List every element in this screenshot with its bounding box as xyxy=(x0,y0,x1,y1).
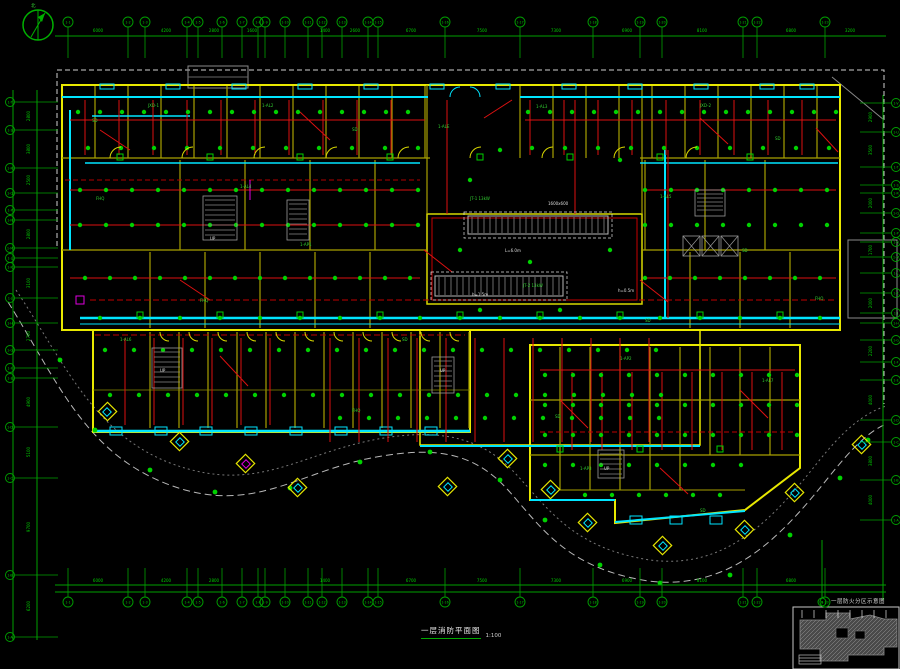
axis-top-bubble-label: 1-12 xyxy=(318,20,325,24)
device-dots xyxy=(662,146,666,150)
device-dots xyxy=(252,110,256,114)
device-dots xyxy=(599,416,603,420)
axis-top-bubble-label: 1-3 xyxy=(142,20,147,24)
device-dots xyxy=(103,348,107,352)
axis-right-bubble-label: 1-K xyxy=(893,291,899,295)
axis-top-bubble-label: 1-13 xyxy=(338,20,345,24)
device-dots xyxy=(728,146,732,150)
axis-top-bubble-label: 1-14 xyxy=(364,20,371,24)
device-dots xyxy=(767,433,771,437)
device-dots xyxy=(838,476,843,481)
axis-bottom-dim: 8100 xyxy=(697,578,708,583)
device-dots xyxy=(338,223,342,227)
device-dots xyxy=(86,146,90,150)
device-dots xyxy=(683,373,687,377)
device-dots xyxy=(498,148,502,152)
device-dots xyxy=(711,433,715,437)
keyplan xyxy=(855,631,865,639)
device-dots xyxy=(610,493,614,497)
annotation-labels: 1-AL4 xyxy=(240,184,252,189)
device-dots xyxy=(480,348,484,352)
axis-bottom-dim: 4200 xyxy=(161,578,172,583)
drawing-scale: 1:100 xyxy=(486,633,502,639)
device-dots xyxy=(691,493,695,497)
axis-bottom-dim: 6000 xyxy=(93,578,104,583)
axis-top-dim: 1600 xyxy=(247,28,258,33)
axis-top-dim: 6000 xyxy=(93,28,104,33)
axis-bottom-bubble-label: 1-23 xyxy=(821,600,828,604)
axis-right-dim: 2900 xyxy=(868,111,873,122)
device-dots xyxy=(428,450,433,455)
device-dots xyxy=(668,276,672,280)
device-dots xyxy=(390,188,394,192)
axis-left-dim: 3100 xyxy=(26,277,31,288)
device-dots xyxy=(655,403,659,407)
axis-bottom-bubble-label: 1-17 xyxy=(516,600,523,604)
axis-bottom-bubble-label: 1-14 xyxy=(364,600,371,604)
device-dots xyxy=(718,493,722,497)
axis-left-bubble-label: 1-L xyxy=(8,256,13,260)
device-dots xyxy=(408,276,412,280)
annotation-labels: SD xyxy=(700,508,706,513)
device-dots xyxy=(108,393,112,397)
axis-bottom-dim: 1400 xyxy=(320,578,331,583)
axis-left-bubble-label: 1-E xyxy=(7,376,12,380)
axis-right-bubble-label: 1-N xyxy=(893,240,899,244)
axis-left-dim: 2700 xyxy=(26,330,31,341)
device-dots xyxy=(427,393,431,397)
device-dots xyxy=(627,463,631,467)
device-dots xyxy=(108,276,112,280)
device-dots xyxy=(643,223,647,227)
annotation-labels: h=0.5m xyxy=(618,288,634,293)
device-dots xyxy=(104,188,108,192)
device-dots xyxy=(773,188,777,192)
device-dots xyxy=(578,316,582,320)
device-dots xyxy=(251,146,255,150)
annotation-labels: h=1.5m xyxy=(472,292,488,297)
device-dots xyxy=(208,188,212,192)
device-dots xyxy=(284,146,288,150)
device-dots xyxy=(599,463,603,467)
device-dots xyxy=(296,110,300,114)
device-dots xyxy=(183,276,187,280)
device-dots xyxy=(308,276,312,280)
device-dots xyxy=(418,316,422,320)
axis-top-dim: 8100 xyxy=(697,28,708,33)
device-dots xyxy=(340,393,344,397)
device-dots xyxy=(583,493,587,497)
drawing-title-block: 一层消防平面图 1:100 xyxy=(421,625,501,639)
device-dots xyxy=(658,110,662,114)
device-dots xyxy=(695,146,699,150)
axis-right-bubble-label: 1-V xyxy=(893,101,899,105)
device-dots xyxy=(396,416,400,420)
device-dots xyxy=(795,433,799,437)
device-dots xyxy=(793,276,797,280)
device-dots xyxy=(230,110,234,114)
axis-left-dim: 2800 xyxy=(26,228,31,239)
device-dots xyxy=(224,393,228,397)
device-dots xyxy=(655,463,659,467)
device-dots xyxy=(219,348,223,352)
axis-left-dim: 2800 xyxy=(26,110,31,121)
device-dots xyxy=(627,373,631,377)
annotation-labels: SD xyxy=(775,136,781,141)
device-dots xyxy=(543,373,547,377)
axis-right-dim: 2000 xyxy=(868,197,873,208)
axis-bottom-dim: 7300 xyxy=(551,578,562,583)
device-dots xyxy=(76,110,80,114)
annotation-labels: L=6.0m xyxy=(505,248,521,253)
axis-right-bubble-label: 1-F xyxy=(893,360,898,364)
device-dots xyxy=(152,146,156,150)
device-dots xyxy=(416,146,420,150)
axis-right-bubble-label: 1-D xyxy=(893,418,899,422)
device-dots xyxy=(318,110,322,114)
axis-right-dim: 3500 xyxy=(868,144,873,155)
device-dots xyxy=(158,276,162,280)
axis-bottom-bubble-label: 1-2 xyxy=(125,600,130,604)
device-dots xyxy=(718,276,722,280)
device-dots xyxy=(543,393,547,397)
device-dots xyxy=(596,146,600,150)
annotation-labels: 1-ALE xyxy=(438,124,450,129)
annotation-labels: 1-AP1 xyxy=(300,242,312,247)
annotation-labels: FHQ xyxy=(815,296,823,301)
device-dots xyxy=(333,276,337,280)
annotation-labels: UP xyxy=(440,368,446,373)
annotation-labels: FHQ xyxy=(200,298,208,303)
device-dots xyxy=(739,373,743,377)
device-dots xyxy=(456,393,460,397)
axis-left-dim: 9700 xyxy=(26,521,31,532)
axis-left-dim: 2500 xyxy=(26,174,31,185)
device-dots xyxy=(393,348,397,352)
device-dots xyxy=(258,316,262,320)
axis-right-bubble-label: 1-S xyxy=(893,183,898,187)
annotation-labels: 1-AP3 xyxy=(580,466,592,471)
device-dots xyxy=(156,223,160,227)
device-dots xyxy=(818,276,822,280)
axis-right-bubble-label: 1-T xyxy=(894,165,899,169)
axis-top-dim: 6900 xyxy=(622,28,633,33)
device-dots xyxy=(541,416,545,420)
device-dots xyxy=(258,276,262,280)
device-dots xyxy=(795,403,799,407)
device-dots xyxy=(208,276,212,280)
annotation-labels: 1-AL5 xyxy=(660,194,672,199)
device-dots xyxy=(627,433,631,437)
device-dots xyxy=(383,146,387,150)
keyplan-title: 一层防火分区示意图 xyxy=(831,597,885,605)
device-dots xyxy=(260,223,264,227)
device-dots xyxy=(133,276,137,280)
axis-right-bubble-label: 1-J xyxy=(894,311,898,315)
device-dots xyxy=(398,393,402,397)
device-dots xyxy=(643,188,647,192)
device-dots xyxy=(498,316,502,320)
device-dots xyxy=(148,468,153,473)
device-dots xyxy=(161,348,165,352)
axis-top-dim: 6700 xyxy=(406,28,417,33)
device-dots xyxy=(628,416,632,420)
axis-bottom-dim: 6900 xyxy=(622,578,633,583)
axis-top-bubble-label: 1-21 xyxy=(739,20,746,24)
axis-right-bubble-label: 1-L xyxy=(894,271,899,275)
device-dots xyxy=(825,223,829,227)
axis-bottom-bubble-label: 1-16 xyxy=(441,600,448,604)
device-dots xyxy=(132,348,136,352)
axis-bottom-bubble-label: 1-10 xyxy=(281,600,288,604)
device-dots xyxy=(164,110,168,114)
keyplan xyxy=(836,628,848,638)
device-dots xyxy=(627,403,631,407)
device-dots xyxy=(799,188,803,192)
device-dots xyxy=(166,393,170,397)
device-dots xyxy=(599,403,603,407)
device-dots xyxy=(78,188,82,192)
device-dots xyxy=(390,223,394,227)
annotation-labels: UP xyxy=(604,466,610,471)
axis-right-bubble-label: 1-E xyxy=(893,378,898,382)
axis-right-dim: 4000 xyxy=(868,394,873,405)
device-dots xyxy=(338,188,342,192)
axis-top-bubble-label: 1-18 xyxy=(589,20,596,24)
axis-left-bubble-label: 1-J xyxy=(8,296,12,300)
device-dots xyxy=(538,348,542,352)
axis-bottom-bubble-label: 1-20 xyxy=(658,600,665,604)
north-label: 北 xyxy=(31,3,36,9)
device-dots xyxy=(526,110,530,114)
device-dots xyxy=(571,373,575,377)
device-dots xyxy=(738,316,742,320)
device-dots xyxy=(683,403,687,407)
device-dots xyxy=(512,416,516,420)
device-dots xyxy=(213,490,218,495)
axis-right-bubble-label: 1-H xyxy=(893,321,899,325)
axis-top-bubble-label: 1-6 xyxy=(219,20,224,24)
axis-bottom-bubble-label: 1-4 xyxy=(184,600,189,604)
annotation-labels: 1-AL7 xyxy=(762,378,774,383)
device-dots xyxy=(767,373,771,377)
axis-right-dim: 2200 xyxy=(868,345,873,356)
device-dots xyxy=(130,223,134,227)
device-dots xyxy=(614,110,618,114)
device-dots xyxy=(795,373,799,377)
device-dots xyxy=(498,478,503,483)
device-dots xyxy=(483,416,487,420)
device-dots xyxy=(338,416,342,420)
axis-top-bubble-label: 1-10 xyxy=(281,20,288,24)
device-dots xyxy=(629,146,633,150)
axis-right-bubble-label: 1-M xyxy=(893,255,899,259)
device-dots xyxy=(711,463,715,467)
annotation-labels: SD xyxy=(352,127,358,132)
device-dots xyxy=(794,146,798,150)
device-dots xyxy=(693,276,697,280)
device-dots xyxy=(563,146,567,150)
axis-top-bubble-label: 1-9 xyxy=(262,20,267,24)
device-dots xyxy=(683,463,687,467)
device-dots xyxy=(362,110,366,114)
axis-right-bubble-label: 1-U xyxy=(893,130,899,134)
axis-right-dim: 1700 xyxy=(868,244,873,255)
cad-viewport: 6JXD-11-AL2SD1-AL3JXD-2FHQ1-AP11-AL5SD1-… xyxy=(0,0,900,669)
axis-left-bubble-label: 1-A xyxy=(7,635,13,639)
device-dots xyxy=(596,348,600,352)
device-dots xyxy=(350,146,354,150)
axis-top-dim: 7500 xyxy=(477,28,488,33)
annotation-labels: JT-2 13kW xyxy=(522,283,543,288)
device-dots xyxy=(543,463,547,467)
axis-top-bubble-label: 1-15 xyxy=(374,20,381,24)
device-dots xyxy=(655,433,659,437)
device-dots xyxy=(767,403,771,407)
device-dots xyxy=(338,316,342,320)
device-dots xyxy=(458,248,462,252)
axis-bottom-bubble-label: 1-19 xyxy=(636,600,643,604)
annotation-labels: 1-AP2 xyxy=(620,356,632,361)
device-dots xyxy=(406,110,410,114)
device-dots xyxy=(190,348,194,352)
device-dots xyxy=(695,223,699,227)
axis-left-bubble-label: 1-C xyxy=(7,476,13,480)
annotation-labels: JT-1 13kW xyxy=(469,196,490,201)
device-dots xyxy=(178,316,182,320)
device-dots xyxy=(119,146,123,150)
device-dots xyxy=(799,223,803,227)
axis-left-bubble-label: 1-R xyxy=(7,166,13,170)
device-dots xyxy=(570,416,574,420)
device-dots xyxy=(654,348,658,352)
device-dots xyxy=(137,393,141,397)
axis-top-bubble-label: 1-5 xyxy=(195,20,200,24)
device-dots xyxy=(98,110,102,114)
device-dots xyxy=(478,308,482,312)
annotation-labels: 1-AL3 xyxy=(536,104,548,109)
device-dots xyxy=(454,416,458,420)
device-dots xyxy=(425,416,429,420)
device-dots xyxy=(253,393,257,397)
device-dots xyxy=(599,373,603,377)
axis-top-dim: 4200 xyxy=(161,28,172,33)
annotation-labels: SD xyxy=(402,337,408,342)
device-dots xyxy=(592,110,596,114)
axis-right-dim: 2000 xyxy=(868,297,873,308)
device-dots xyxy=(601,393,605,397)
axis-bottom-bubble-label: 1-12 xyxy=(318,600,325,604)
axis-top-bubble-label: 1-1 xyxy=(65,20,70,24)
axis-top-bubble-label: 1-20 xyxy=(658,20,665,24)
device-dots xyxy=(643,276,647,280)
device-dots xyxy=(739,403,743,407)
axis-bottom-bubble-label: 1-9 xyxy=(262,600,267,604)
axis-left-dim: 3800 xyxy=(26,143,31,154)
device-dots xyxy=(747,223,751,227)
axis-right-dim: 3800 xyxy=(868,455,873,466)
device-dots xyxy=(818,316,822,320)
device-dots xyxy=(182,188,186,192)
device-dots xyxy=(130,188,134,192)
device-dots xyxy=(669,188,673,192)
device-dots xyxy=(93,428,98,433)
device-dots xyxy=(657,416,661,420)
device-dots xyxy=(384,110,388,114)
device-dots xyxy=(311,393,315,397)
drawing-title: 一层消防平面图 xyxy=(421,625,481,639)
axis-top-bubble-label: 1-11 xyxy=(304,20,311,24)
device-dots xyxy=(655,373,659,377)
axis-bottom-bubble-label: 1-11 xyxy=(304,600,311,604)
device-dots xyxy=(186,110,190,114)
device-dots xyxy=(659,393,663,397)
device-dots xyxy=(747,188,751,192)
device-dots xyxy=(773,223,777,227)
device-dots xyxy=(739,433,743,437)
device-dots xyxy=(367,416,371,420)
device-dots xyxy=(571,403,575,407)
axis-bottom-bubble-label: 1-1 xyxy=(65,600,70,604)
device-dots xyxy=(768,276,772,280)
cad-canvas[interactable]: 6JXD-11-AL2SD1-AL3JXD-2FHQ1-AP11-AL5SD1-… xyxy=(0,0,900,669)
device-dots xyxy=(825,188,829,192)
device-dots xyxy=(680,110,684,114)
device-dots xyxy=(306,348,310,352)
device-dots xyxy=(558,308,562,312)
device-dots xyxy=(83,276,87,280)
device-dots xyxy=(218,146,222,150)
annotation-labels: SD xyxy=(742,248,748,253)
device-dots xyxy=(834,110,838,114)
device-dots xyxy=(669,223,673,227)
device-dots xyxy=(485,393,489,397)
axis-top-bubble-label: 1-19 xyxy=(636,20,643,24)
axis-bottom-bubble-label: 1-15 xyxy=(374,600,381,604)
axis-bottom-dim: 7500 xyxy=(477,578,488,583)
axis-left-bubble-label: 1-T xyxy=(8,100,13,104)
device-dots xyxy=(567,348,571,352)
device-dots xyxy=(340,110,344,114)
device-dots xyxy=(451,348,455,352)
annotation-labels: SD xyxy=(555,414,561,419)
device-dots xyxy=(282,393,286,397)
axis-bottom-bubble-label: 1-5 xyxy=(195,600,200,604)
axis-bottom-bubble-label: 1-21 xyxy=(739,600,746,604)
device-dots xyxy=(509,348,513,352)
device-dots xyxy=(358,276,362,280)
device-dots xyxy=(743,276,747,280)
device-dots xyxy=(636,110,640,114)
axis-left-dim: 4900 xyxy=(26,396,31,407)
axis-top-dim: 2600 xyxy=(350,28,361,33)
axis-left-bubble-label: 1-D xyxy=(7,425,13,429)
axis-right-bubble-label: 1-B xyxy=(893,478,898,482)
axis-bottom-bubble-label: 1-6 xyxy=(219,600,224,604)
annotation-labels: JXD-2 xyxy=(699,103,711,108)
device-dots xyxy=(570,110,574,114)
axis-top-bubble-label: 1-4 xyxy=(184,20,189,24)
annotation-labels: SD xyxy=(645,318,651,323)
device-dots xyxy=(788,533,793,538)
axis-top-bubble-label: 1-2 xyxy=(125,20,130,24)
device-dots xyxy=(530,146,534,150)
axis-top-dim: 1400 xyxy=(320,28,331,33)
device-dots xyxy=(335,348,339,352)
device-dots xyxy=(658,316,662,320)
axis-bottom-bubble-label: 1-22 xyxy=(753,600,760,604)
device-dots xyxy=(761,146,765,150)
